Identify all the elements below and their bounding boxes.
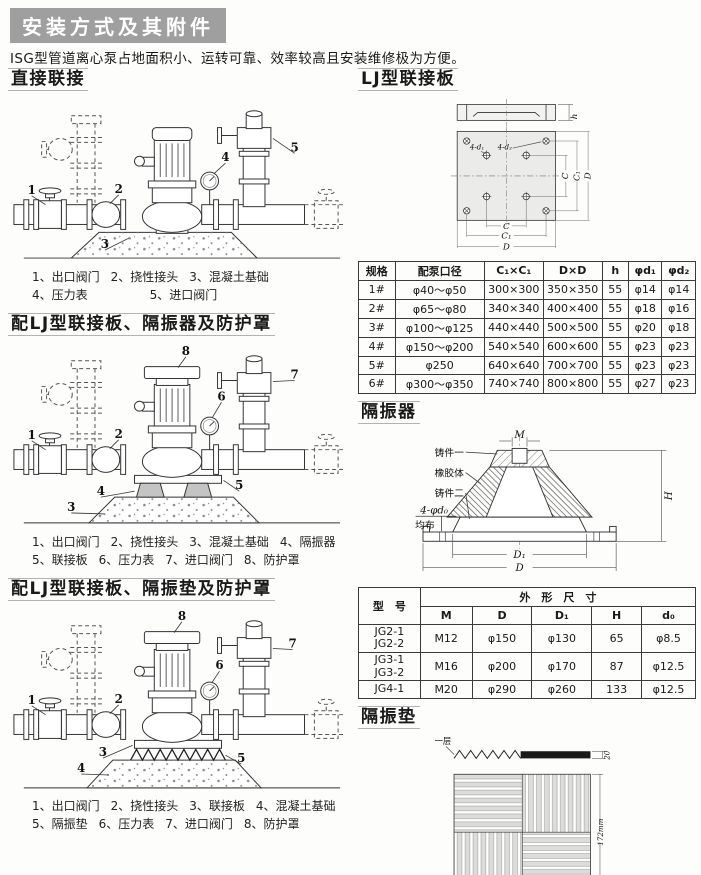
legend-item: 4、隔振器	[280, 535, 336, 549]
table-cell: φ260	[532, 681, 592, 699]
table-cell: JG3-1 JG3-2	[359, 652, 421, 680]
dim-label-c-bottom: C	[503, 222, 510, 232]
table-cell: φ40～φ50	[395, 280, 484, 299]
dim-label-hh: H	[664, 490, 675, 501]
part-number-n1: 1	[28, 183, 36, 197]
dim-label-thickness: 20	[602, 750, 611, 761]
legend-line: 5、隔振垫6、压力表7、进口阀门8、防护罩	[32, 815, 354, 833]
table-cell: 640×640	[484, 356, 543, 374]
dim-label-d-bottom: D	[502, 243, 510, 253]
part-number-n6: 6	[217, 389, 225, 403]
table-cell: 55	[602, 280, 628, 299]
label-casting2: 铸件二	[435, 486, 464, 499]
table-cell: φ100～φ125	[395, 318, 484, 337]
table-cell: JG4-1	[359, 681, 421, 699]
table-cell: 740×740	[484, 374, 543, 393]
col-header: D×D	[543, 261, 602, 280]
table-cell: φ170	[532, 652, 592, 680]
table-cell: 600×600	[543, 337, 602, 356]
table-cell: 55	[602, 299, 628, 318]
dim-label-d1: D₁	[512, 550, 525, 561]
col-header-span: 外 形 尺 寸	[420, 587, 695, 606]
table-cell: M20	[420, 681, 472, 699]
right-column: LJ型联接板 h	[358, 66, 696, 875]
table-cell: 55	[602, 356, 628, 374]
table-cell: φ23	[628, 337, 661, 356]
label-rubber: 橡胶体	[435, 466, 464, 479]
table-row: 1#φ40～φ50300×300350×35055φ14φ14	[359, 280, 696, 299]
label-layer: 一层	[435, 736, 452, 746]
part-number-n2: 2	[115, 182, 123, 196]
table-cell: 800×800	[543, 374, 602, 393]
part-number-n2: 2	[115, 427, 123, 441]
table-cell: 5#	[359, 356, 396, 374]
table-cell: φ65～φ80	[395, 299, 484, 318]
table-cell: 540×540	[484, 337, 543, 356]
table-cell: φ14	[662, 280, 696, 299]
isolator-drawing: 铸件一 橡胶体 铸件二 4-φd₀ 均布 M H D₁ D	[371, 428, 683, 584]
section-heading-lj-plate: LJ型联接板	[358, 68, 458, 91]
legend-item: 1、出口阀门	[32, 270, 100, 284]
legend-item: 4、混凝土基础	[256, 799, 336, 813]
col-header: φd₂	[662, 261, 696, 280]
legend-line: 1、出口阀门2、挠性接头3、混凝土基础4、隔振器	[32, 533, 354, 551]
table-cell: φ23	[628, 356, 661, 374]
part-number-n5: 5	[237, 751, 245, 765]
section-heading-pad: 隔振垫	[358, 706, 420, 729]
table-cell: 6#	[359, 374, 396, 393]
direct-connection-diagram: 12345	[8, 94, 348, 267]
page-title: 安装方式及其附件	[10, 8, 226, 43]
legend-pad-mount: 1、出口阀门2、挠性接头3、联接板4、混凝土基础 5、隔振垫6、压力表7、进口阀…	[8, 797, 354, 833]
part-number-n5: 5	[290, 140, 298, 154]
lj-plate-drawing: h 4-d₁ 4-d₂	[408, 95, 646, 258]
isolator-mount-diagram: 12867453	[8, 339, 348, 532]
table-cell: 400×400	[543, 299, 602, 318]
col-header-model: 型 号	[359, 587, 421, 624]
part-number-n2: 2	[115, 692, 123, 706]
legend-item: 8、防护罩	[244, 553, 300, 567]
table-cell: φ150	[472, 624, 532, 652]
intro-text: ISG型管道离心泵占地面积小、运转可靠、效率较高且安装维修极为方便。	[10, 47, 465, 67]
dim-label-c1-right: C₁	[572, 171, 582, 181]
legend-item: 5、隔振垫	[32, 817, 88, 831]
table-row: JG2-1 JG2-2M12φ150φ13065φ8.5	[359, 624, 696, 652]
part-number-n8: 8	[182, 344, 190, 358]
section-heading-isolator-mount: 配LJ型联接板、隔振器及防护罩	[8, 313, 275, 336]
table-row: 6#φ300～φ350740×740800×80055φ27φ23	[359, 374, 696, 393]
table-cell: φ130	[532, 624, 592, 652]
label-holes-note: 均布	[415, 519, 435, 531]
table-cell: φ16	[662, 299, 696, 318]
legend-item: 7、进口阀门	[165, 817, 233, 831]
legend-item: 2、挠性接头	[111, 535, 179, 549]
legend-line: 1、出口阀门2、挠性接头3、混凝土基础	[32, 268, 354, 286]
legend-item: 6、压力表	[99, 553, 155, 567]
table-cell: JG2-1 JG2-2	[359, 624, 421, 652]
table-cell: 1#	[359, 280, 396, 299]
part-number-n8: 8	[178, 608, 186, 622]
table-row: 4#φ150～φ200540×540600×60055φ23φ23	[359, 337, 696, 356]
table-cell: 440×440	[484, 318, 543, 337]
section-heading-pad-mount: 配LJ型联接板、隔振垫及防护罩	[8, 578, 275, 601]
table-header-row: 型 号 外 形 尺 寸	[359, 587, 696, 606]
dim-label-d: D	[514, 563, 523, 574]
table-cell: φ150～φ200	[395, 337, 484, 356]
col-header: D₁	[532, 606, 592, 624]
table-cell: 2#	[359, 299, 396, 318]
table-cell: 65	[592, 624, 642, 652]
legend-direct: 1、出口阀门2、挠性接头3、混凝土基础 4、压力表5、进口阀门	[8, 268, 354, 304]
legend-item: 4、压力表	[32, 288, 88, 302]
table-row: 2#φ65～φ80340×340400×40055φ18φ16	[359, 299, 696, 318]
section-heading-isolator: 隔振器	[358, 401, 420, 424]
table-cell: φ12.5	[642, 652, 696, 680]
col-header: H	[592, 606, 642, 624]
legend-line: 1、出口阀门2、挠性接头3、联接板4、混凝土基础	[32, 797, 354, 815]
legend-item: 3、联接板	[189, 799, 245, 813]
table-cell: 4#	[359, 337, 396, 356]
legend-item: 6、压力表	[99, 817, 155, 831]
table-cell: φ12.5	[642, 681, 696, 699]
legend-item: 5、联接板	[32, 553, 88, 567]
legend-line: 5、联接板6、压力表7、进口阀门8、防护罩	[32, 551, 354, 569]
legend-item: 2、挠性接头	[111, 270, 179, 284]
legend-item: 5、进口阀门	[150, 288, 218, 302]
part-number-n4: 4	[97, 484, 105, 498]
part-number-n4: 4	[221, 150, 229, 164]
legend-item: 3、混凝土基础	[189, 270, 269, 284]
dim-label-m: M	[513, 430, 525, 441]
table-cell: 500×500	[543, 318, 602, 337]
table-cell: φ23	[662, 374, 696, 393]
table-cell: M12	[420, 624, 472, 652]
pad-drawing: 一层 20 172mm 172mm	[408, 733, 646, 875]
part-number-n1: 1	[28, 428, 36, 442]
part-number-n4: 4	[77, 761, 85, 775]
col-header: M	[420, 606, 472, 624]
table-cell: 350×350	[543, 280, 602, 299]
table-cell: φ20	[628, 318, 661, 337]
isolator-table: 型 号 外 形 尺 寸 M D D₁ H d₀ JG2-1 JG2-2M12φ1…	[358, 587, 696, 700]
part-number-n3: 3	[99, 745, 107, 759]
table-cell: 55	[602, 374, 628, 393]
left-column: 直接联接 12345 1、出口阀门2、挠性接头3、混凝土基础 4、压力表5、进口…	[8, 66, 354, 833]
table-cell: 300×300	[484, 280, 543, 299]
table-cell: 3#	[359, 318, 396, 337]
table-row: 5#φ250640×640700×70055φ23φ23	[359, 356, 696, 374]
table-cell: 133	[592, 681, 642, 699]
table-cell: φ290	[472, 681, 532, 699]
dim-label-c-right: C	[561, 172, 571, 179]
col-header: 规格	[359, 261, 396, 280]
table-cell: φ23	[662, 356, 696, 374]
table-cell: 340×340	[484, 299, 543, 318]
legend-item: 3、混凝土基础	[189, 535, 269, 549]
part-number-n6: 6	[215, 658, 223, 672]
label-casting1: 铸件一	[435, 445, 464, 458]
section-heading-direct: 直接联接	[8, 68, 88, 91]
table-cell: φ18	[628, 299, 661, 318]
hole-label-d2: 4-d₂	[497, 143, 513, 152]
part-number-n3: 3	[67, 500, 75, 514]
pad-mount-diagram: 12867354	[8, 604, 348, 797]
legend-item: 2、挠性接头	[111, 799, 179, 813]
col-header: h	[602, 261, 628, 280]
legend-item: 1、出口阀门	[32, 535, 100, 549]
table-cell: M16	[420, 652, 472, 680]
legend-isolator-mount: 1、出口阀门2、挠性接头3、混凝土基础4、隔振器 5、联接板6、压力表7、进口阀…	[8, 533, 354, 569]
col-header: 配泵口径	[395, 261, 484, 280]
col-header: C₁×C₁	[484, 261, 543, 280]
table-cell: 55	[602, 337, 628, 356]
table-cell: φ250	[395, 356, 484, 374]
legend-item: 7、进口阀门	[165, 553, 233, 567]
table-cell: φ200	[472, 652, 532, 680]
catalog-page: 安装方式及其附件 ISG型管道离心泵占地面积小、运转可靠、效率较高且安装维修极为…	[0, 0, 701, 875]
table-row: JG4-1M20φ290φ260133φ12.5	[359, 681, 696, 699]
table-header-row: 规格 配泵口径 C₁×C₁ D×D h φd₁ φd₂	[359, 261, 696, 280]
label-holes: 4-φd₀	[419, 505, 448, 516]
table-cell: φ14	[628, 280, 661, 299]
legend-item: 1、出口阀门	[32, 799, 100, 813]
table-row: 3#φ100～φ125440×440500×50055φ20φ18	[359, 318, 696, 337]
table-cell: 700×700	[543, 356, 602, 374]
table-cell: 87	[592, 652, 642, 680]
table-cell: φ8.5	[642, 624, 696, 652]
col-header: φd₁	[628, 261, 661, 280]
table-cell: φ23	[662, 337, 696, 356]
table-cell: φ300～φ350	[395, 374, 484, 393]
part-number-n7: 7	[290, 367, 298, 381]
part-number-n3: 3	[101, 237, 109, 251]
legend-line: 4、压力表5、进口阀门	[32, 286, 354, 304]
dim-label-height: 172mm	[596, 819, 605, 846]
lj-plate-table: 规格 配泵口径 C₁×C₁ D×D h φd₁ φd₂ 1#φ40～φ50300…	[358, 261, 696, 394]
table-cell: φ18	[662, 318, 696, 337]
dim-label-d-right: D	[583, 172, 593, 180]
part-number-n7: 7	[289, 636, 297, 650]
table-cell: 55	[602, 318, 628, 337]
table-row: JG3-1 JG3-2M16φ200φ17087φ12.5	[359, 652, 696, 680]
col-header: D	[472, 606, 532, 624]
part-number-n5: 5	[235, 478, 243, 492]
table-cell: φ27	[628, 374, 661, 393]
dim-label-h: h	[570, 114, 580, 120]
hole-label-d1: 4-d₁	[469, 143, 485, 152]
part-number-n1: 1	[28, 692, 36, 706]
dim-label-c1-bottom: C₁	[501, 232, 511, 242]
legend-item: 8、防护罩	[244, 817, 300, 831]
col-header: d₀	[642, 606, 696, 624]
